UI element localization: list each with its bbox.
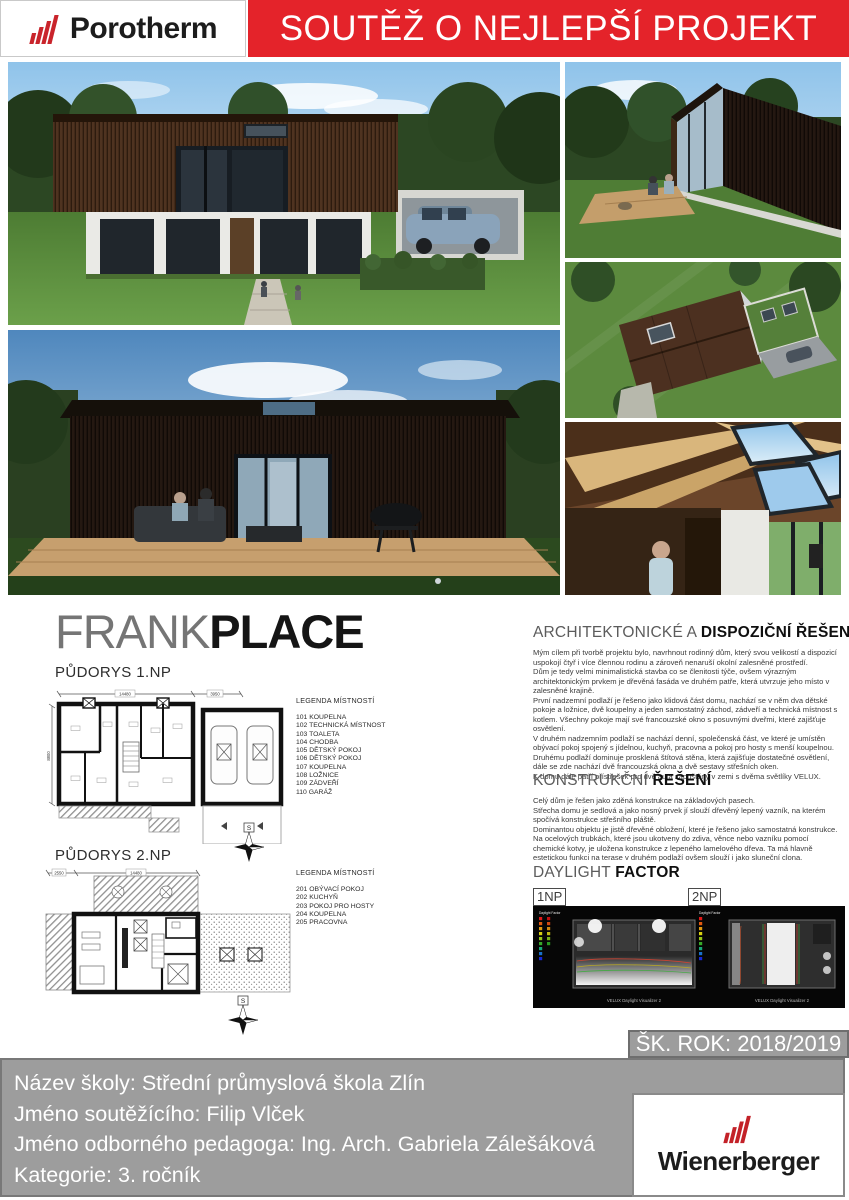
daylight-label-2np: 2NP	[688, 888, 721, 906]
plan1-compass: S	[234, 822, 264, 862]
plan1-legend: LEGENDA MÍSTNOSTÍ 101 KOUPELNA 102 TECHN…	[296, 696, 461, 797]
plan1-dim-left: 8800	[46, 751, 51, 761]
daylight-legend-title: Daylight Factor	[539, 911, 561, 915]
plan1-dim-top-right: 3950	[210, 691, 220, 696]
porotherm-wordmark: Porotherm	[70, 12, 217, 46]
compass-north-label: S	[241, 998, 246, 1005]
render-exterior-terrace-evening	[8, 330, 560, 595]
paragraph: Střecha domu je sedlová a jako nosný prv…	[533, 806, 838, 825]
legend-item: 109 ZÁDVEŘÍ	[296, 780, 461, 788]
paragraph: Dům je tedy velmi minimalistická stavba …	[533, 667, 838, 696]
white-cabinet	[721, 510, 769, 595]
competition-poster: Porotherm SOUTĚŽ O NEJLEPŠÍ PROJEKT	[0, 0, 849, 1200]
wienerberger-logo: Wienerberger	[632, 1093, 845, 1197]
daylight-heading-regular: DAYLIGHT	[533, 864, 615, 881]
constr-section-heading: KONSTRUKČNÍ ŘEŠENÍ	[533, 772, 711, 790]
wood-deck	[8, 538, 560, 576]
daylight-panel: Daylight Factor	[533, 906, 845, 1008]
project-title-frank: FRANK	[55, 605, 209, 658]
legend-item: 107 KOUPELNA	[296, 764, 461, 772]
legend-item: 202 KUCHYŇ	[296, 894, 461, 902]
plan2-compass: S	[228, 995, 258, 1035]
render-exterior-side	[565, 62, 841, 258]
paragraph: V druhém nadzemním podlaží se nachází de…	[533, 734, 838, 753]
compass-north-label: S	[247, 825, 252, 832]
plan2-dimensions	[46, 870, 200, 876]
house-lower-floor	[86, 212, 371, 279]
plan1-heading: PŮDORYS 1.NP	[55, 664, 171, 681]
legend-item: 103 TOALETA	[296, 731, 461, 739]
legend-item: 204 KOUPELNA	[296, 911, 461, 919]
paragraph: Mým cílem při tvorbě projektu bylo, navr…	[533, 648, 838, 667]
wienerberger-bars-icon	[722, 1114, 756, 1144]
arch-heading-bold: DISPOZIČNÍ ŘEŠENÍ	[701, 624, 849, 641]
legend-item: 205 PRACOVNA	[296, 919, 461, 927]
constr-section-text: Celý dům je řešen jako zděná konstrukce …	[533, 796, 838, 863]
arch-heading-regular: ARCHITEKTONICKÉ A	[533, 624, 701, 641]
render-interior-roof	[565, 422, 841, 595]
plan2-heading: PŮDORYS 2.NP	[55, 847, 171, 864]
daylight-heading-bold: FACTOR	[615, 864, 680, 881]
glass-wall	[769, 522, 841, 595]
arch-section-heading: ARCHITEKTONICKÉ A DISPOZIČNÍ ŘEŠENÍ	[533, 624, 849, 642]
plan2-dim-top-left: 2550	[54, 870, 64, 875]
legend-item: 102 TECHNICKÁ MÍSTNOST	[296, 722, 461, 730]
plan1-dim-top: 14480	[119, 691, 131, 696]
daylight-map-1np	[573, 919, 695, 988]
paragraph: První nadzemní podlaží je řešeno jako kl…	[533, 696, 838, 734]
daylight-label-1np: 1NP	[533, 888, 566, 906]
person	[649, 541, 673, 595]
paragraph: Celý dům je řešen jako zděná konstrukce …	[533, 796, 838, 806]
plan2-dim-top: 14480	[130, 870, 142, 875]
paragraph: Druhému podlaží dominuje prosklená štíto…	[533, 753, 838, 772]
plan2-legend-title: LEGENDA MÍSTNOSTÍ	[296, 868, 461, 877]
arch-section-text: Mým cílem při tvorbě projektu bylo, navr…	[533, 648, 838, 781]
plan2-walls	[74, 914, 198, 992]
house-dark-mass	[60, 400, 520, 540]
daylight-map-2np	[729, 920, 835, 988]
legend-item: 106 DĚTSKÝ POKOJ	[296, 755, 461, 763]
plan1-garage	[203, 710, 281, 804]
porotherm-bars-icon	[29, 13, 63, 45]
legend-item: 104 CHODBA	[296, 739, 461, 747]
porotherm-logo: Porotherm	[0, 0, 246, 57]
project-title-place: PLACE	[209, 605, 363, 658]
render-aerial	[565, 262, 841, 418]
banner: SOUTĚŽ O NEJLEPŠÍ PROJEKT	[248, 0, 849, 57]
daylight-legend-title: Daylight Factor	[699, 911, 721, 915]
plan2-legend: LEGENDA MÍSTNOSTÍ 201 OBÝVACÍ POKOJ 202 …	[296, 868, 461, 927]
plan1-drawing: 14480 3950 8800	[45, 684, 295, 844]
legend-item: 203 POKOJ PRO HOSTY	[296, 903, 461, 911]
daylight-section-heading: DAYLIGHT FACTOR	[533, 864, 680, 882]
legend-item: 110 GARÁŽ	[296, 789, 461, 797]
school-year-bar: ŠK. ROK: 2018/2019	[628, 1030, 849, 1058]
constr-heading-bold: ŘEŠENÍ	[653, 772, 712, 789]
daylight-caption-2np: VELUX Daylight Visualizer 2	[755, 998, 810, 1003]
render-exterior-front	[8, 62, 560, 325]
project-title: FRANKPLACE	[55, 604, 364, 659]
constr-heading-regular: KONSTRUKČNÍ	[533, 772, 653, 789]
wienerberger-wordmark: Wienerberger	[658, 1146, 819, 1177]
daylight-caption-1np: VELUX Daylight Visualizer 2	[607, 998, 662, 1003]
house-upper-floor	[53, 114, 398, 212]
plan1-stair	[123, 742, 139, 772]
plan1-legend-title: LEGENDA MÍSTNOSTÍ	[296, 696, 461, 705]
paragraph: Na ocelových trubkách, které jsou ukotve…	[533, 834, 838, 863]
school-year-text: ŠK. ROK: 2018/2019	[636, 1031, 841, 1057]
banner-title: SOUTĚŽ O NEJLEPŠÍ PROJEKT	[280, 9, 818, 49]
paragraph: Dominantou objektu je jistě dřevěné oblo…	[533, 825, 838, 835]
